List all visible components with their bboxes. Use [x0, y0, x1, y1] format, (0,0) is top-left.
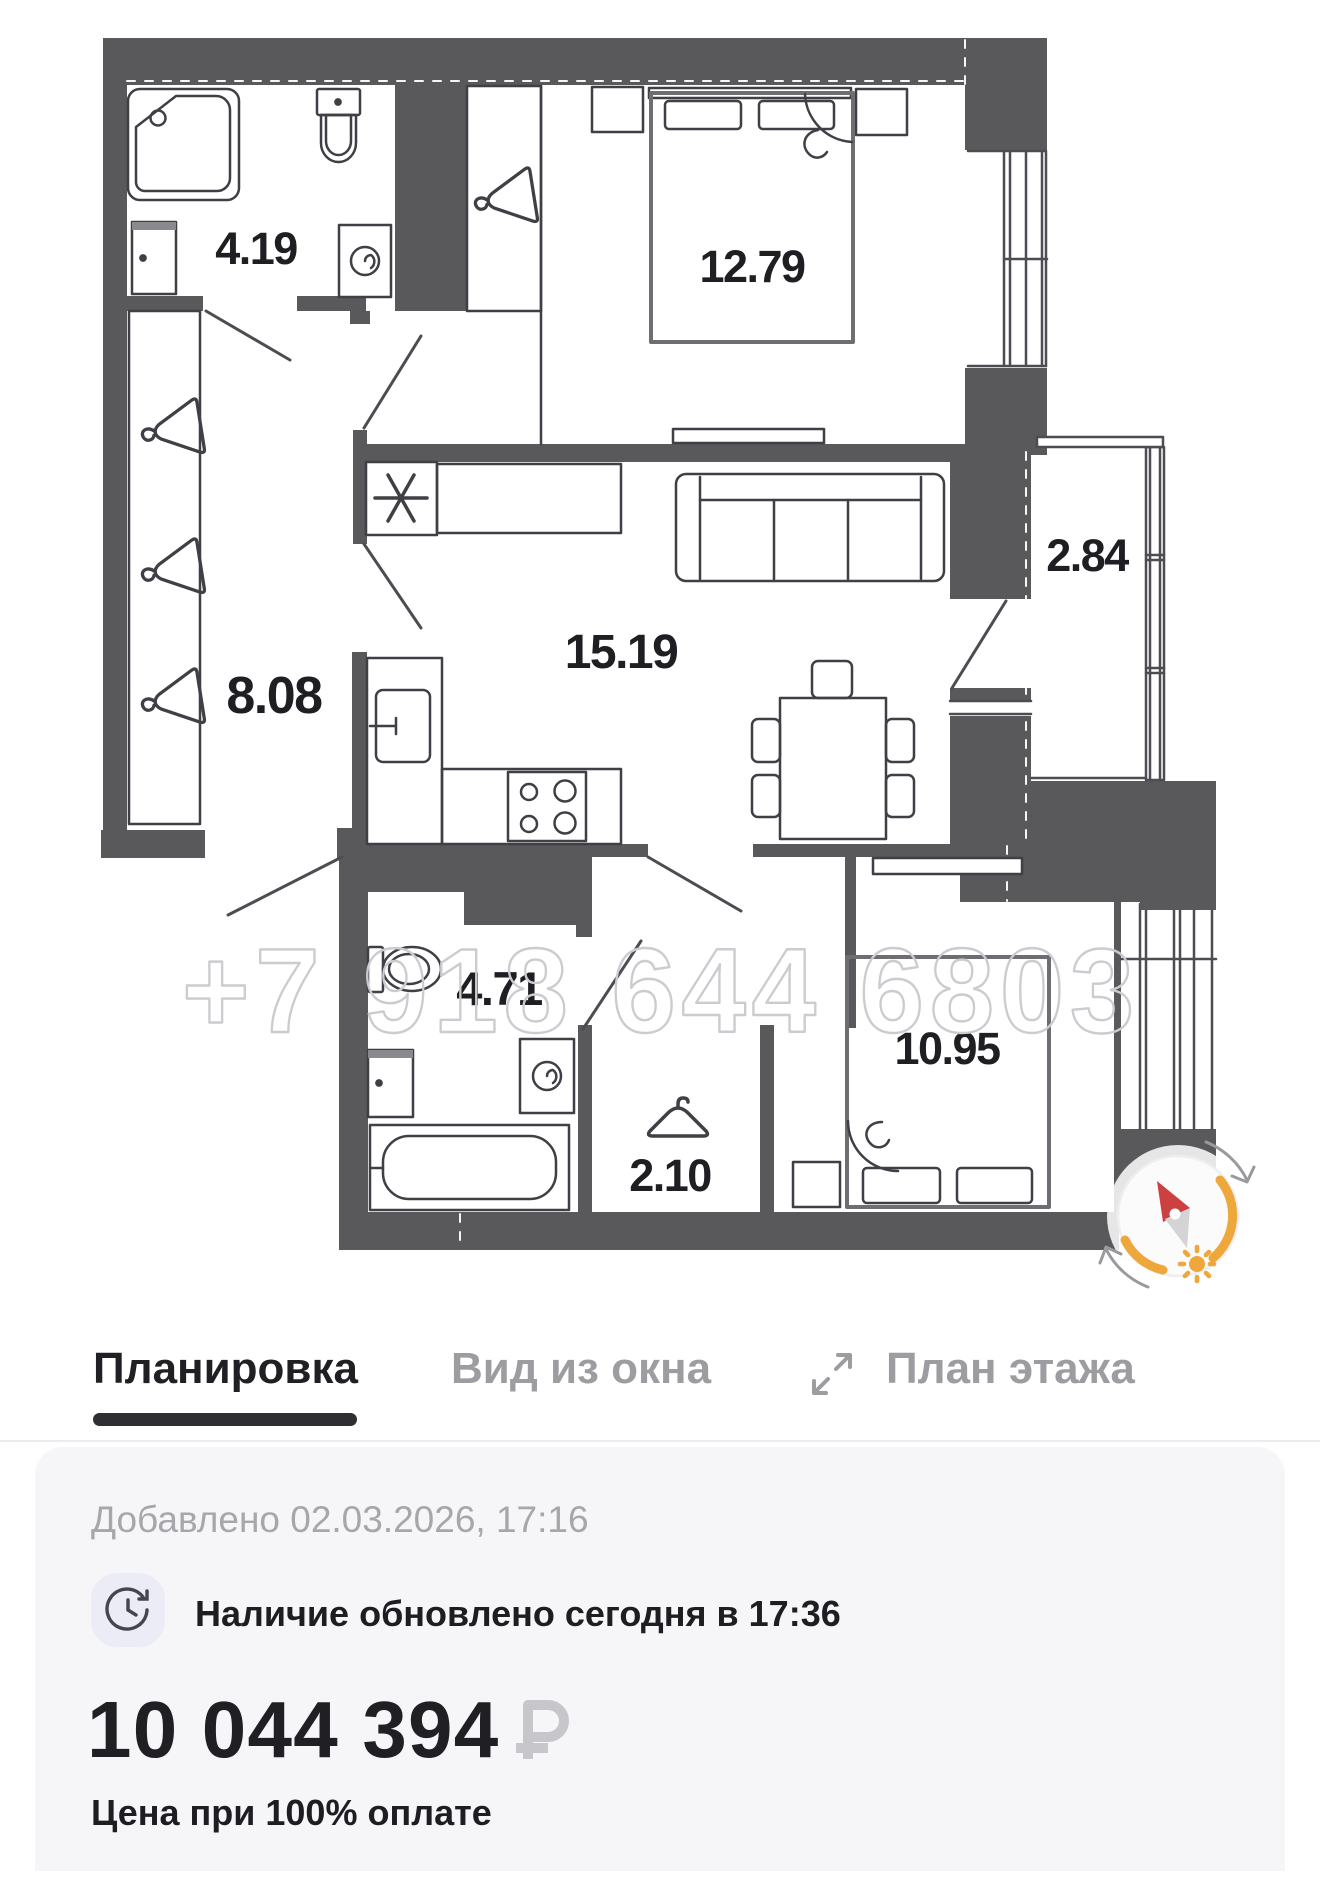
svg-text:2.10: 2.10 — [629, 1150, 711, 1201]
svg-text:12.79: 12.79 — [699, 241, 805, 292]
svg-text:15.19: 15.19 — [565, 626, 678, 679]
svg-text:4.19: 4.19 — [215, 223, 297, 274]
svg-text:2.84: 2.84 — [1046, 530, 1129, 581]
svg-text:8.08: 8.08 — [226, 667, 322, 725]
svg-text:+7 918 644 6803: +7 918 644 6803 — [182, 924, 1140, 1058]
